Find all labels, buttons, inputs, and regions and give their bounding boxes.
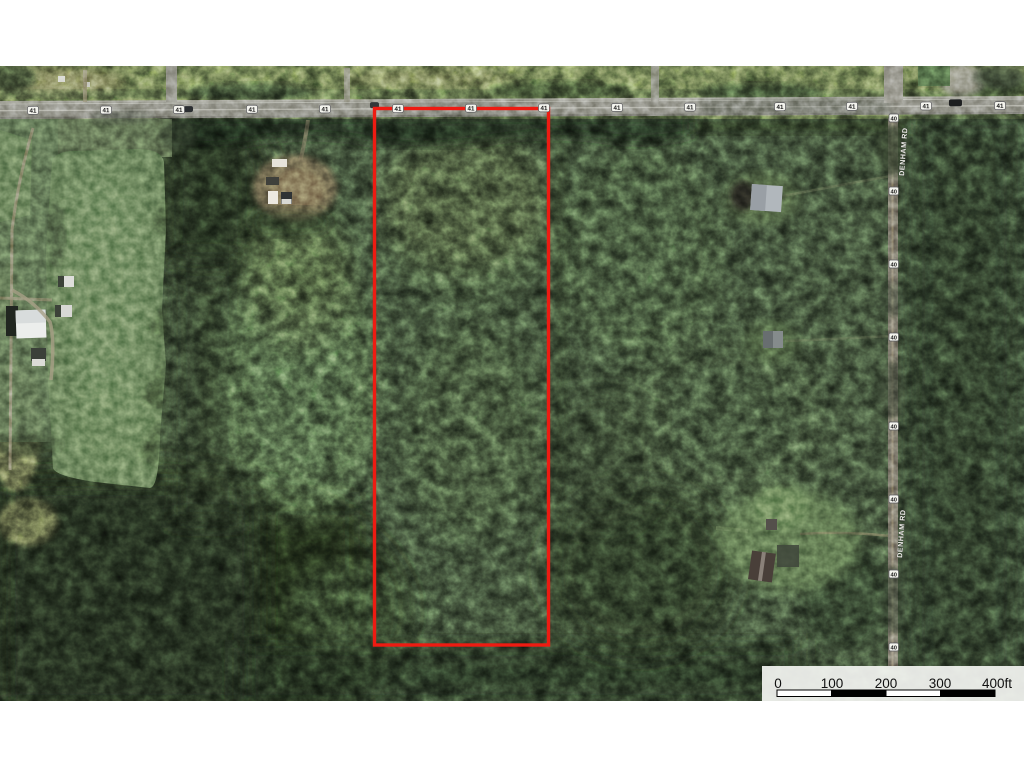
svg-text:100: 100 — [821, 676, 844, 691]
svg-text:40: 40 — [890, 190, 896, 196]
svg-text:41: 41 — [30, 108, 37, 115]
svg-text:300: 300 — [929, 676, 952, 691]
svg-text:41: 41 — [997, 103, 1004, 110]
svg-text:41: 41 — [541, 105, 548, 112]
svg-text:41: 41 — [468, 105, 475, 112]
svg-text:41: 41 — [923, 103, 930, 110]
svg-text:40: 40 — [890, 646, 896, 652]
svg-text:41: 41 — [322, 106, 329, 113]
svg-text:41: 41 — [103, 107, 110, 114]
svg-text:41: 41 — [849, 104, 856, 111]
svg-text:40: 40 — [890, 498, 896, 504]
svg-text:400ft: 400ft — [982, 676, 1012, 691]
svg-text:40: 40 — [890, 336, 896, 342]
svg-text:40: 40 — [890, 425, 896, 431]
svg-text:200: 200 — [875, 676, 898, 691]
svg-text:0: 0 — [774, 676, 782, 691]
svg-text:40: 40 — [890, 263, 896, 269]
svg-text:41: 41 — [176, 107, 183, 114]
svg-text:41: 41 — [777, 104, 784, 111]
svg-text:41: 41 — [395, 106, 402, 113]
svg-text:40: 40 — [890, 573, 896, 579]
svg-text:41: 41 — [249, 107, 256, 114]
svg-text:40: 40 — [890, 117, 896, 123]
svg-text:41: 41 — [687, 104, 694, 111]
svg-text:41: 41 — [614, 105, 621, 112]
